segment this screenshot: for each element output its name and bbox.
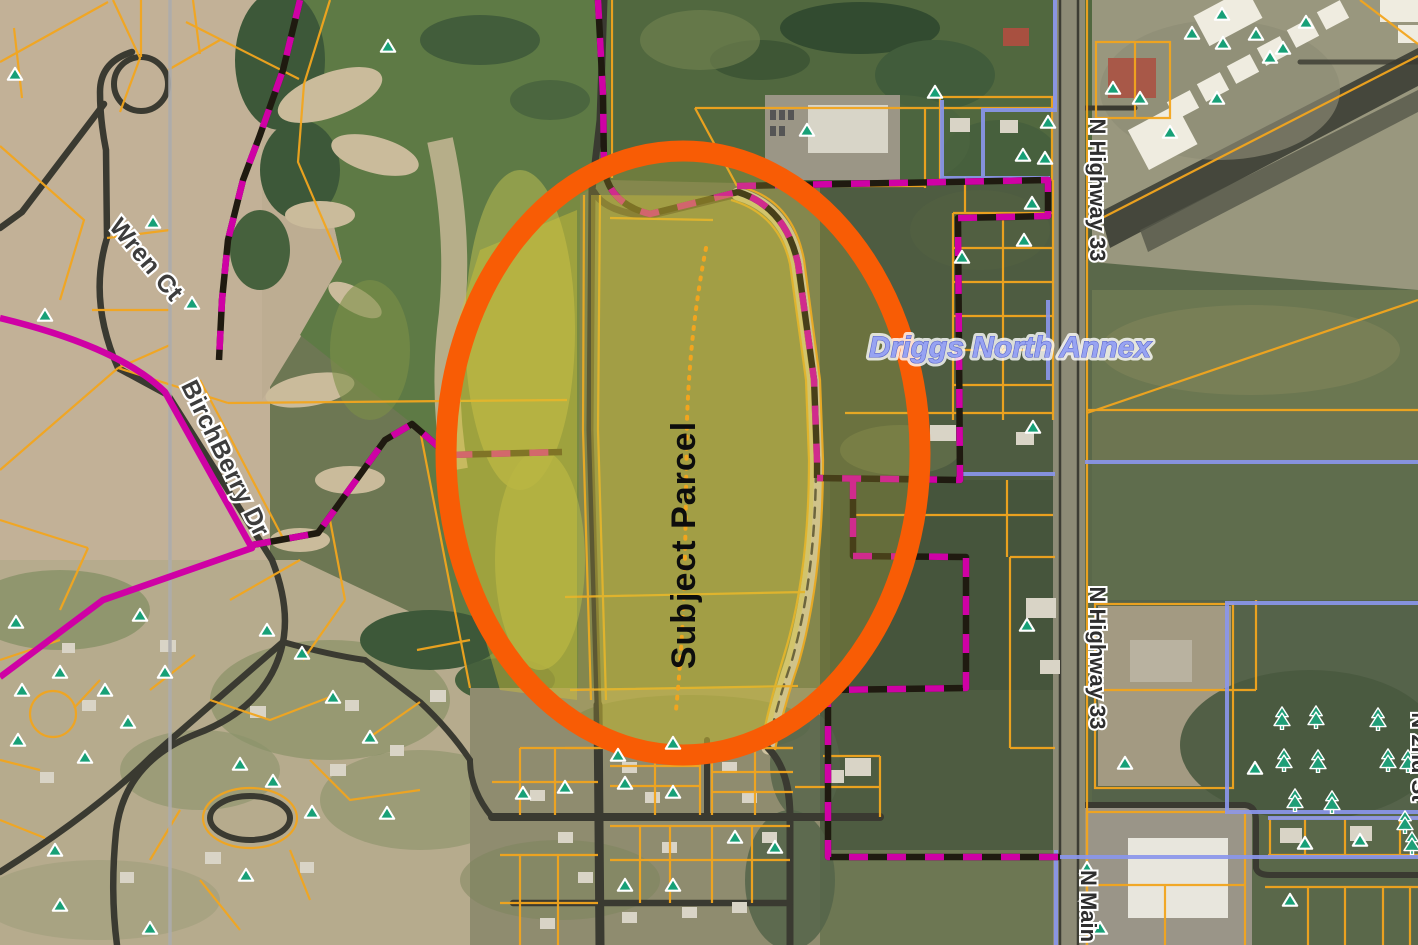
street-label-n-highway-33-south: N Highway 33 [1085,586,1110,729]
map-viewport[interactable]: Wren Ct BirchBerry Dr N Highway 33 N Hig… [0,0,1418,945]
street-label-n-highway-33-north: N Highway 33 [1085,118,1110,261]
subject-parcel-label: Subject Parcel [665,421,703,669]
street-label-n-main: N Main [1076,870,1101,942]
highway-33-road [1053,0,1085,945]
street-label-n-2nd-st: N 2nd St [1407,712,1418,802]
area-label-driggs-north-annex: Driggs North Annex [869,331,1153,364]
store-building [1128,838,1228,918]
